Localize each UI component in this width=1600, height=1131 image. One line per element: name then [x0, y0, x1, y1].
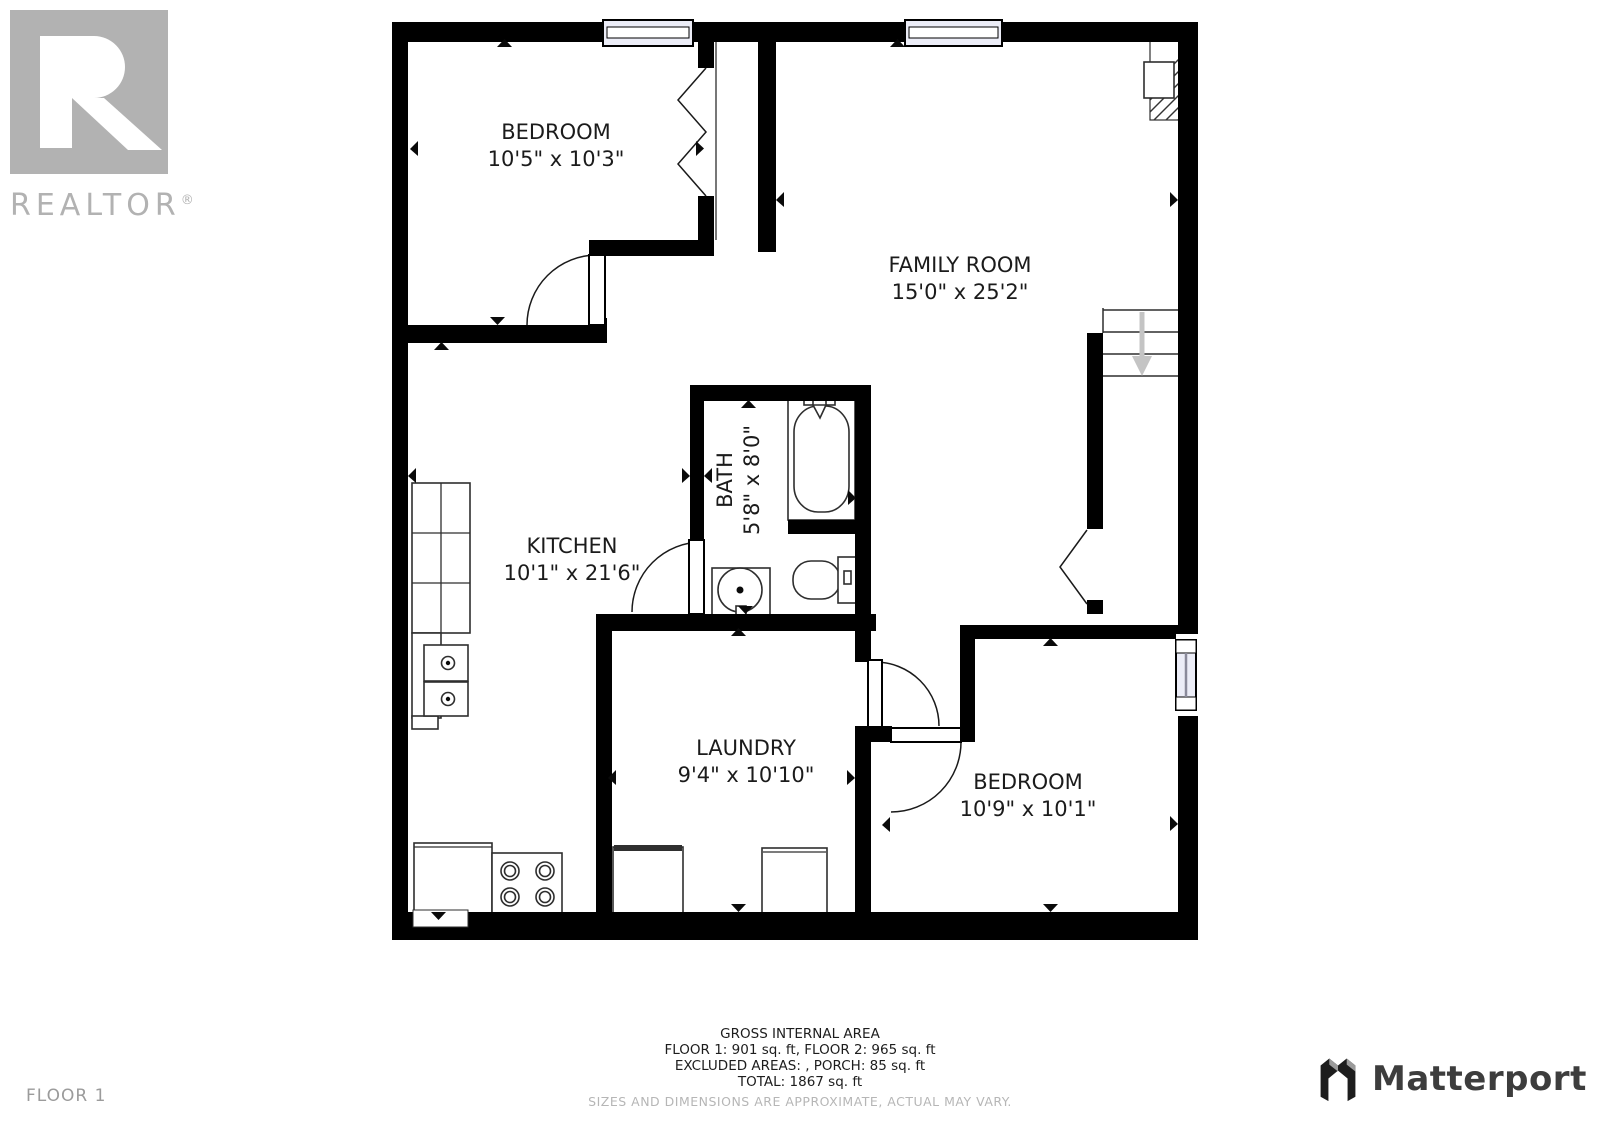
- room-name: LAUNDRY: [678, 735, 815, 762]
- realtor-r-icon: [10, 10, 168, 174]
- gross-internal-area-title: GROSS INTERNAL AREA: [0, 1026, 1600, 1042]
- room-label-bedroom-1: BEDROOM 10'5" x 10'3": [488, 119, 625, 173]
- room-name: FAMILY ROOM: [888, 252, 1031, 279]
- room-dims: 15'0" x 25'2": [888, 279, 1031, 306]
- room-label-kitchen: KITCHEN 10'1" x 21'6": [504, 533, 641, 587]
- door-bath: [632, 540, 704, 614]
- floor-plan: [0, 0, 1600, 1131]
- window-icon-bedroom-2: [1176, 634, 1200, 716]
- window-icon-family-room: [905, 20, 1002, 46]
- room-label-bedroom-2: BEDROOM 10'9" x 10'1": [960, 769, 1097, 823]
- matterport-wordmark: Matterport: [1372, 1059, 1587, 1099]
- room-dims: 5'8" x 8'0": [739, 425, 766, 535]
- stairs-icon: [1103, 308, 1178, 376]
- bathtub-icon: [788, 396, 855, 520]
- room-dims: 9'4" x 10'10": [678, 762, 815, 789]
- kitchen-sink-icon: [424, 645, 468, 716]
- room-label-family-room: FAMILY ROOM 15'0" x 25'2": [888, 252, 1031, 306]
- room-dims: 10'1" x 21'6": [504, 560, 641, 587]
- room-label-laundry: LAUNDRY 9'4" x 10'10": [678, 735, 815, 789]
- door-laundry: [868, 660, 939, 727]
- realtor-logo: REALTOR®: [10, 10, 190, 223]
- floor-label: FLOOR 1: [26, 1086, 106, 1106]
- window-icon-bedroom-1: [603, 20, 693, 46]
- dryer-icon: [762, 848, 827, 913]
- room-name: BEDROOM: [488, 119, 625, 146]
- room-name: KITCHEN: [504, 533, 641, 560]
- understair-door-icon: [1060, 530, 1087, 604]
- stove-icon: [492, 853, 562, 913]
- washer-icon: [613, 845, 683, 913]
- room-name: BATH: [712, 425, 739, 535]
- room-name: BEDROOM: [960, 769, 1097, 796]
- realtor-wordmark: REALTOR®: [10, 188, 190, 223]
- room-label-bath: BATH 5'8" x 8'0": [712, 425, 766, 535]
- toilet-icon: [793, 557, 856, 603]
- bathroom-sink-icon: [712, 568, 770, 622]
- door-bedroom-1: [527, 255, 605, 325]
- door-bedroom-2: [891, 728, 961, 812]
- bifold-door-icon: [678, 68, 706, 196]
- room-dims: 10'9" x 10'1": [960, 796, 1097, 823]
- matterport-m-icon: [1316, 1055, 1360, 1102]
- matterport-logo: Matterport: [1316, 1055, 1587, 1102]
- room-dims: 10'5" x 10'3": [488, 146, 625, 173]
